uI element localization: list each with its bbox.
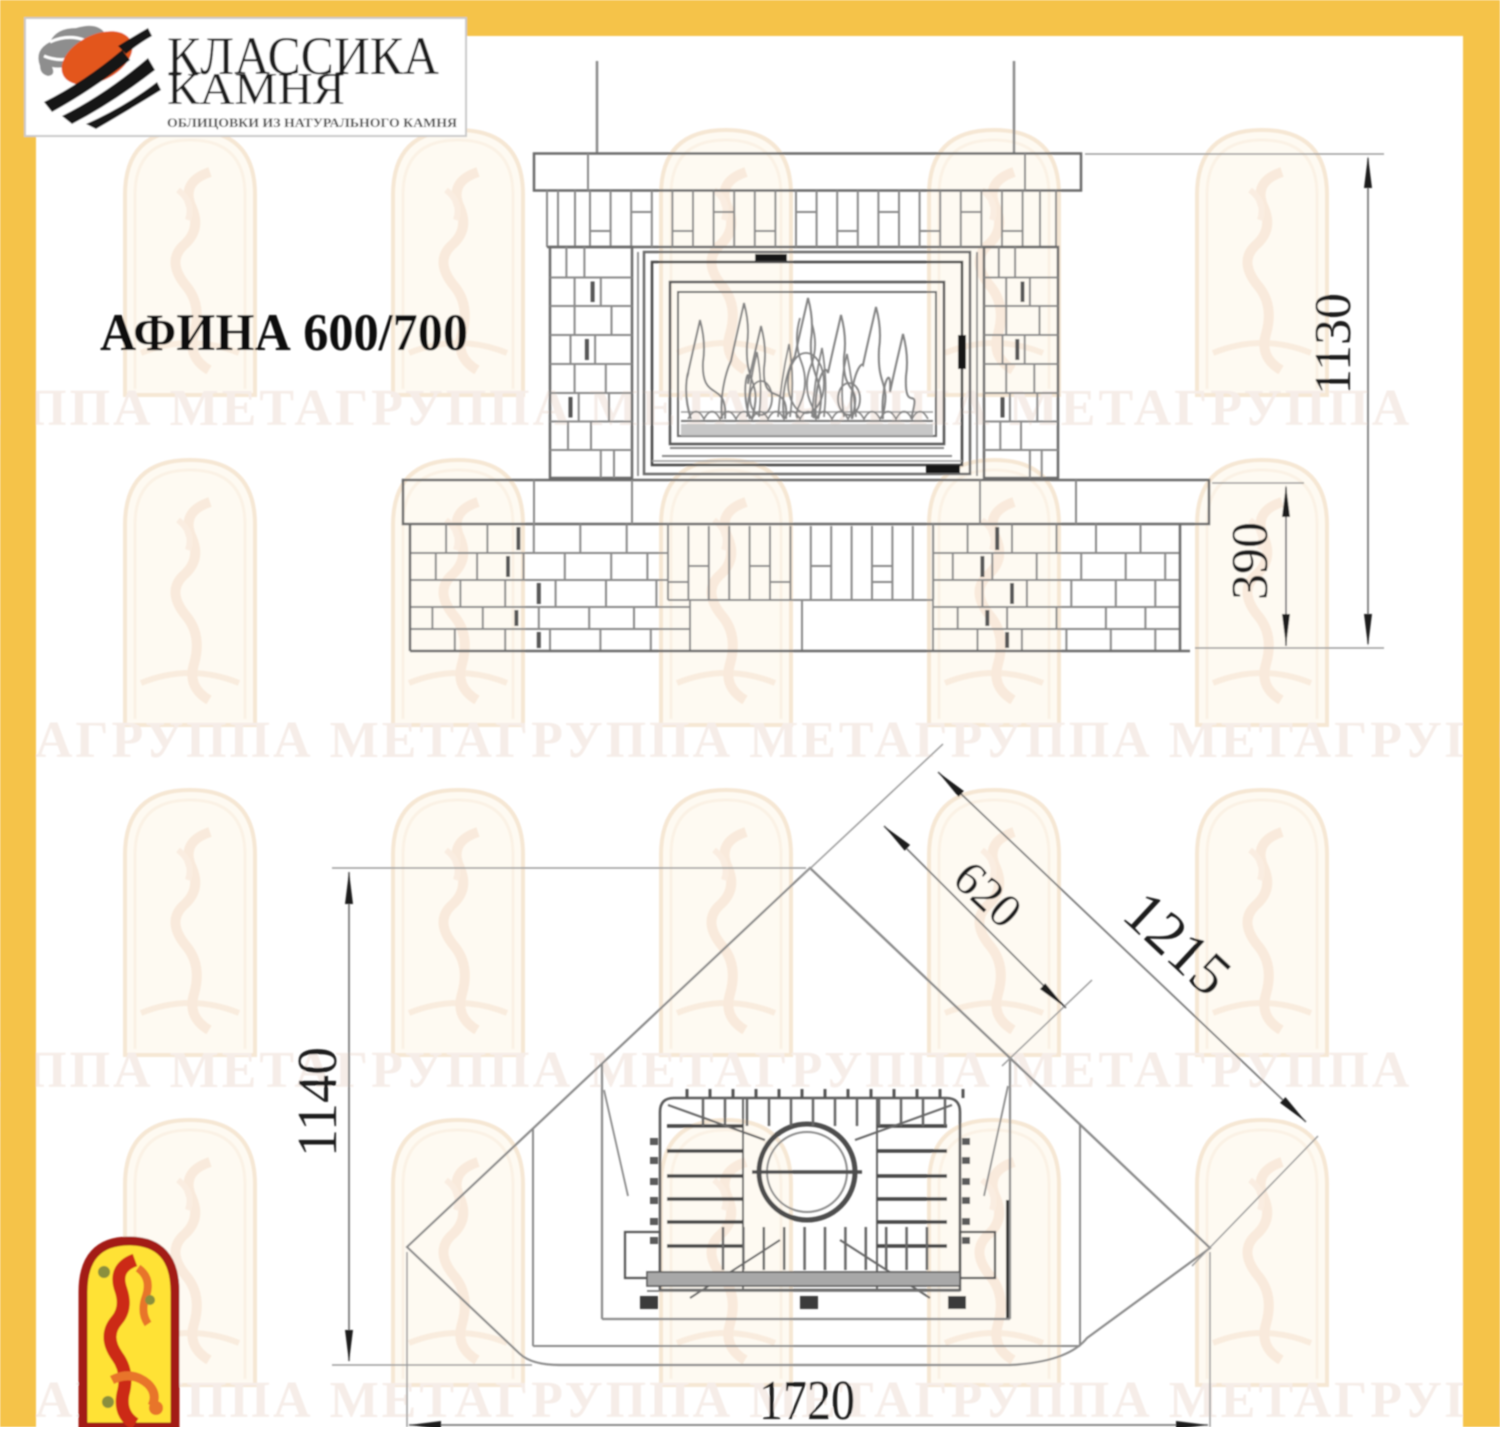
svg-text:1140: 1140	[287, 1047, 349, 1157]
svg-text:КАМНЯ: КАМНЯ	[167, 64, 345, 114]
svg-text:МЕТАГРУППА МЕТАГРУППА МЕТАГРУП: МЕТАГРУППА МЕТАГРУППА МЕТАГРУППА МЕТАГРУ…	[0, 1372, 1500, 1427]
svg-text:МЕТАГРУППА МЕТАГРУППА МЕТАГРУП: МЕТАГРУППА МЕТАГРУППА МЕТАГРУППА МЕТАГРУ…	[0, 712, 1500, 769]
svg-text:АФИНА 600/700: АФИНА 600/700	[100, 304, 468, 362]
svg-text:МЕТАГРУППА МЕТАГРУППА МЕТАГРУП: МЕТАГРУППА МЕТАГРУППА МЕТАГРУППА МЕТАГРУ…	[0, 1042, 1412, 1099]
svg-text:1720: 1720	[759, 1370, 855, 1427]
svg-text:390: 390	[1222, 522, 1279, 600]
svg-text:ОБЛИЦОВКИ ИЗ НАТУРАЛЬНОГО КАМН: ОБЛИЦОВКИ ИЗ НАТУРАЛЬНОГО КАМНЯ	[167, 116, 457, 130]
svg-text:1130: 1130	[1305, 293, 1362, 395]
